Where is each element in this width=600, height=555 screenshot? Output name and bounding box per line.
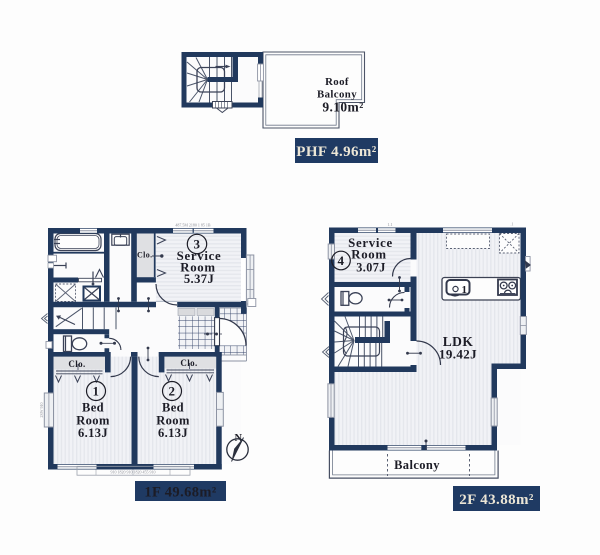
svg-text:Balcony: Balcony	[394, 458, 440, 472]
svg-text:6.13J: 6.13J	[158, 426, 188, 440]
svg-text:Bed: Bed	[82, 401, 104, 415]
svg-text:1: 1	[462, 284, 468, 296]
svg-text:1: 1	[93, 384, 100, 399]
svg-text:.1: .1	[511, 222, 514, 227]
svg-text:2: 2	[169, 384, 176, 399]
svg-text:Clo.: Clo.	[68, 359, 85, 369]
svg-text:19.42J: 19.42J	[439, 347, 477, 362]
svg-text:1F 49.68m²: 1F 49.68m²	[144, 485, 216, 501]
svg-text:2F 43.88m²: 2F 43.88m²	[459, 492, 534, 508]
svg-text:Clo.: Clo.	[180, 358, 197, 368]
svg-text:Clo.: Clo.	[137, 251, 153, 260]
svg-text:Bed: Bed	[162, 401, 184, 415]
svg-text:4: 4	[338, 253, 345, 268]
svg-text:9.10m²: 9.10m²	[322, 100, 363, 115]
svg-text:6.13J: 6.13J	[78, 426, 108, 440]
svg-text:PHF 4.96m²: PHF 4.96m²	[296, 144, 377, 160]
svg-text:Room: Room	[351, 248, 387, 262]
svg-text:5.37J: 5.37J	[184, 272, 214, 286]
svg-text:3.07J: 3.07J	[356, 261, 385, 275]
svg-text:2SW 910: 2SW 910	[39, 403, 44, 418]
svg-text:Roof: Roof	[325, 76, 349, 88]
svg-text:1.1: 1.1	[388, 222, 393, 227]
svg-text:910 1820 910 1820 455 910: 910 1820 910 1820 455 910	[111, 470, 156, 475]
svg-text:487.5M 2180 1 85 1B: 487.5M 2180 1 85 1B	[175, 223, 211, 228]
